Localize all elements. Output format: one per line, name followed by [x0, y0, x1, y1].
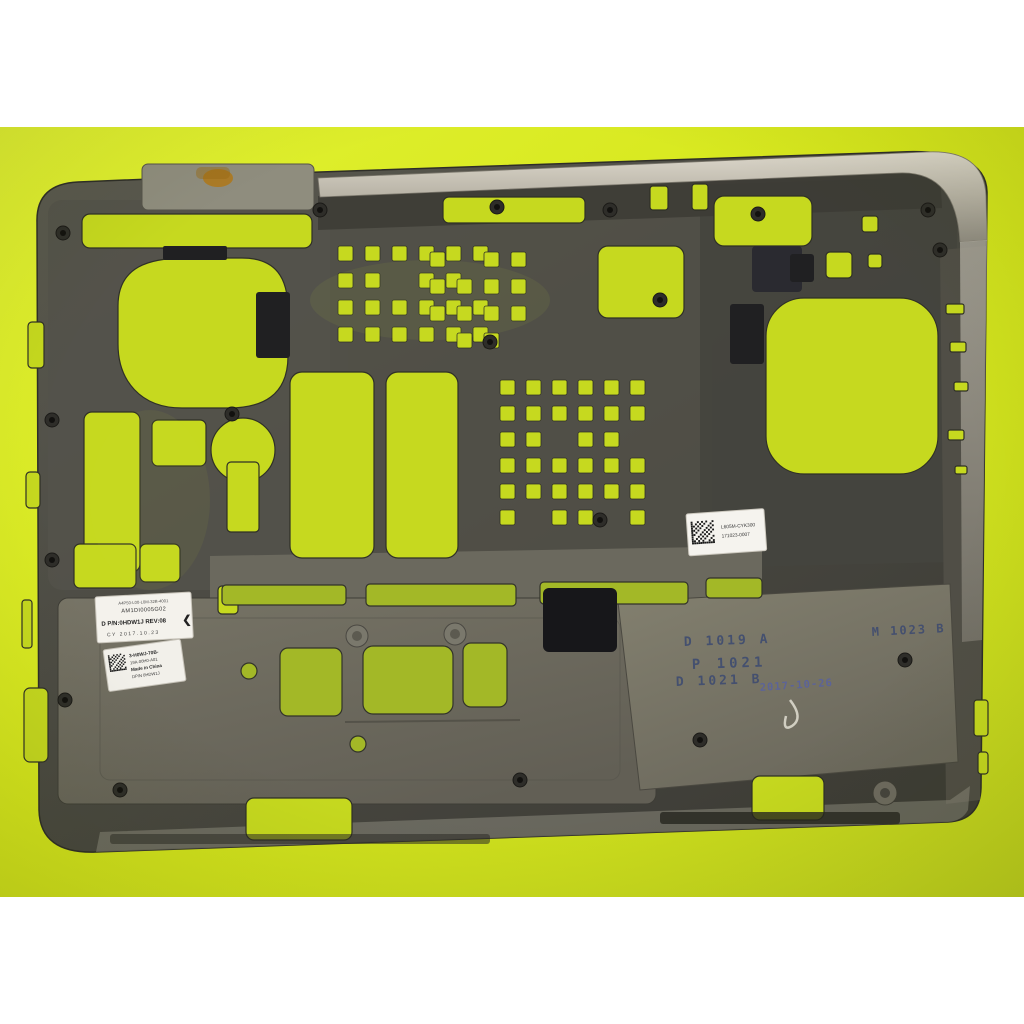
photo-vignette	[0, 127, 1024, 897]
product-photo-stage: A4P50-L00-L0M-32B-4001 AM1DI0005G02 D P/…	[0, 0, 1024, 1024]
photo-canvas: A4P50-L00-L0M-32B-4001 AM1DI0005G02 D P/…	[0, 0, 1024, 1024]
